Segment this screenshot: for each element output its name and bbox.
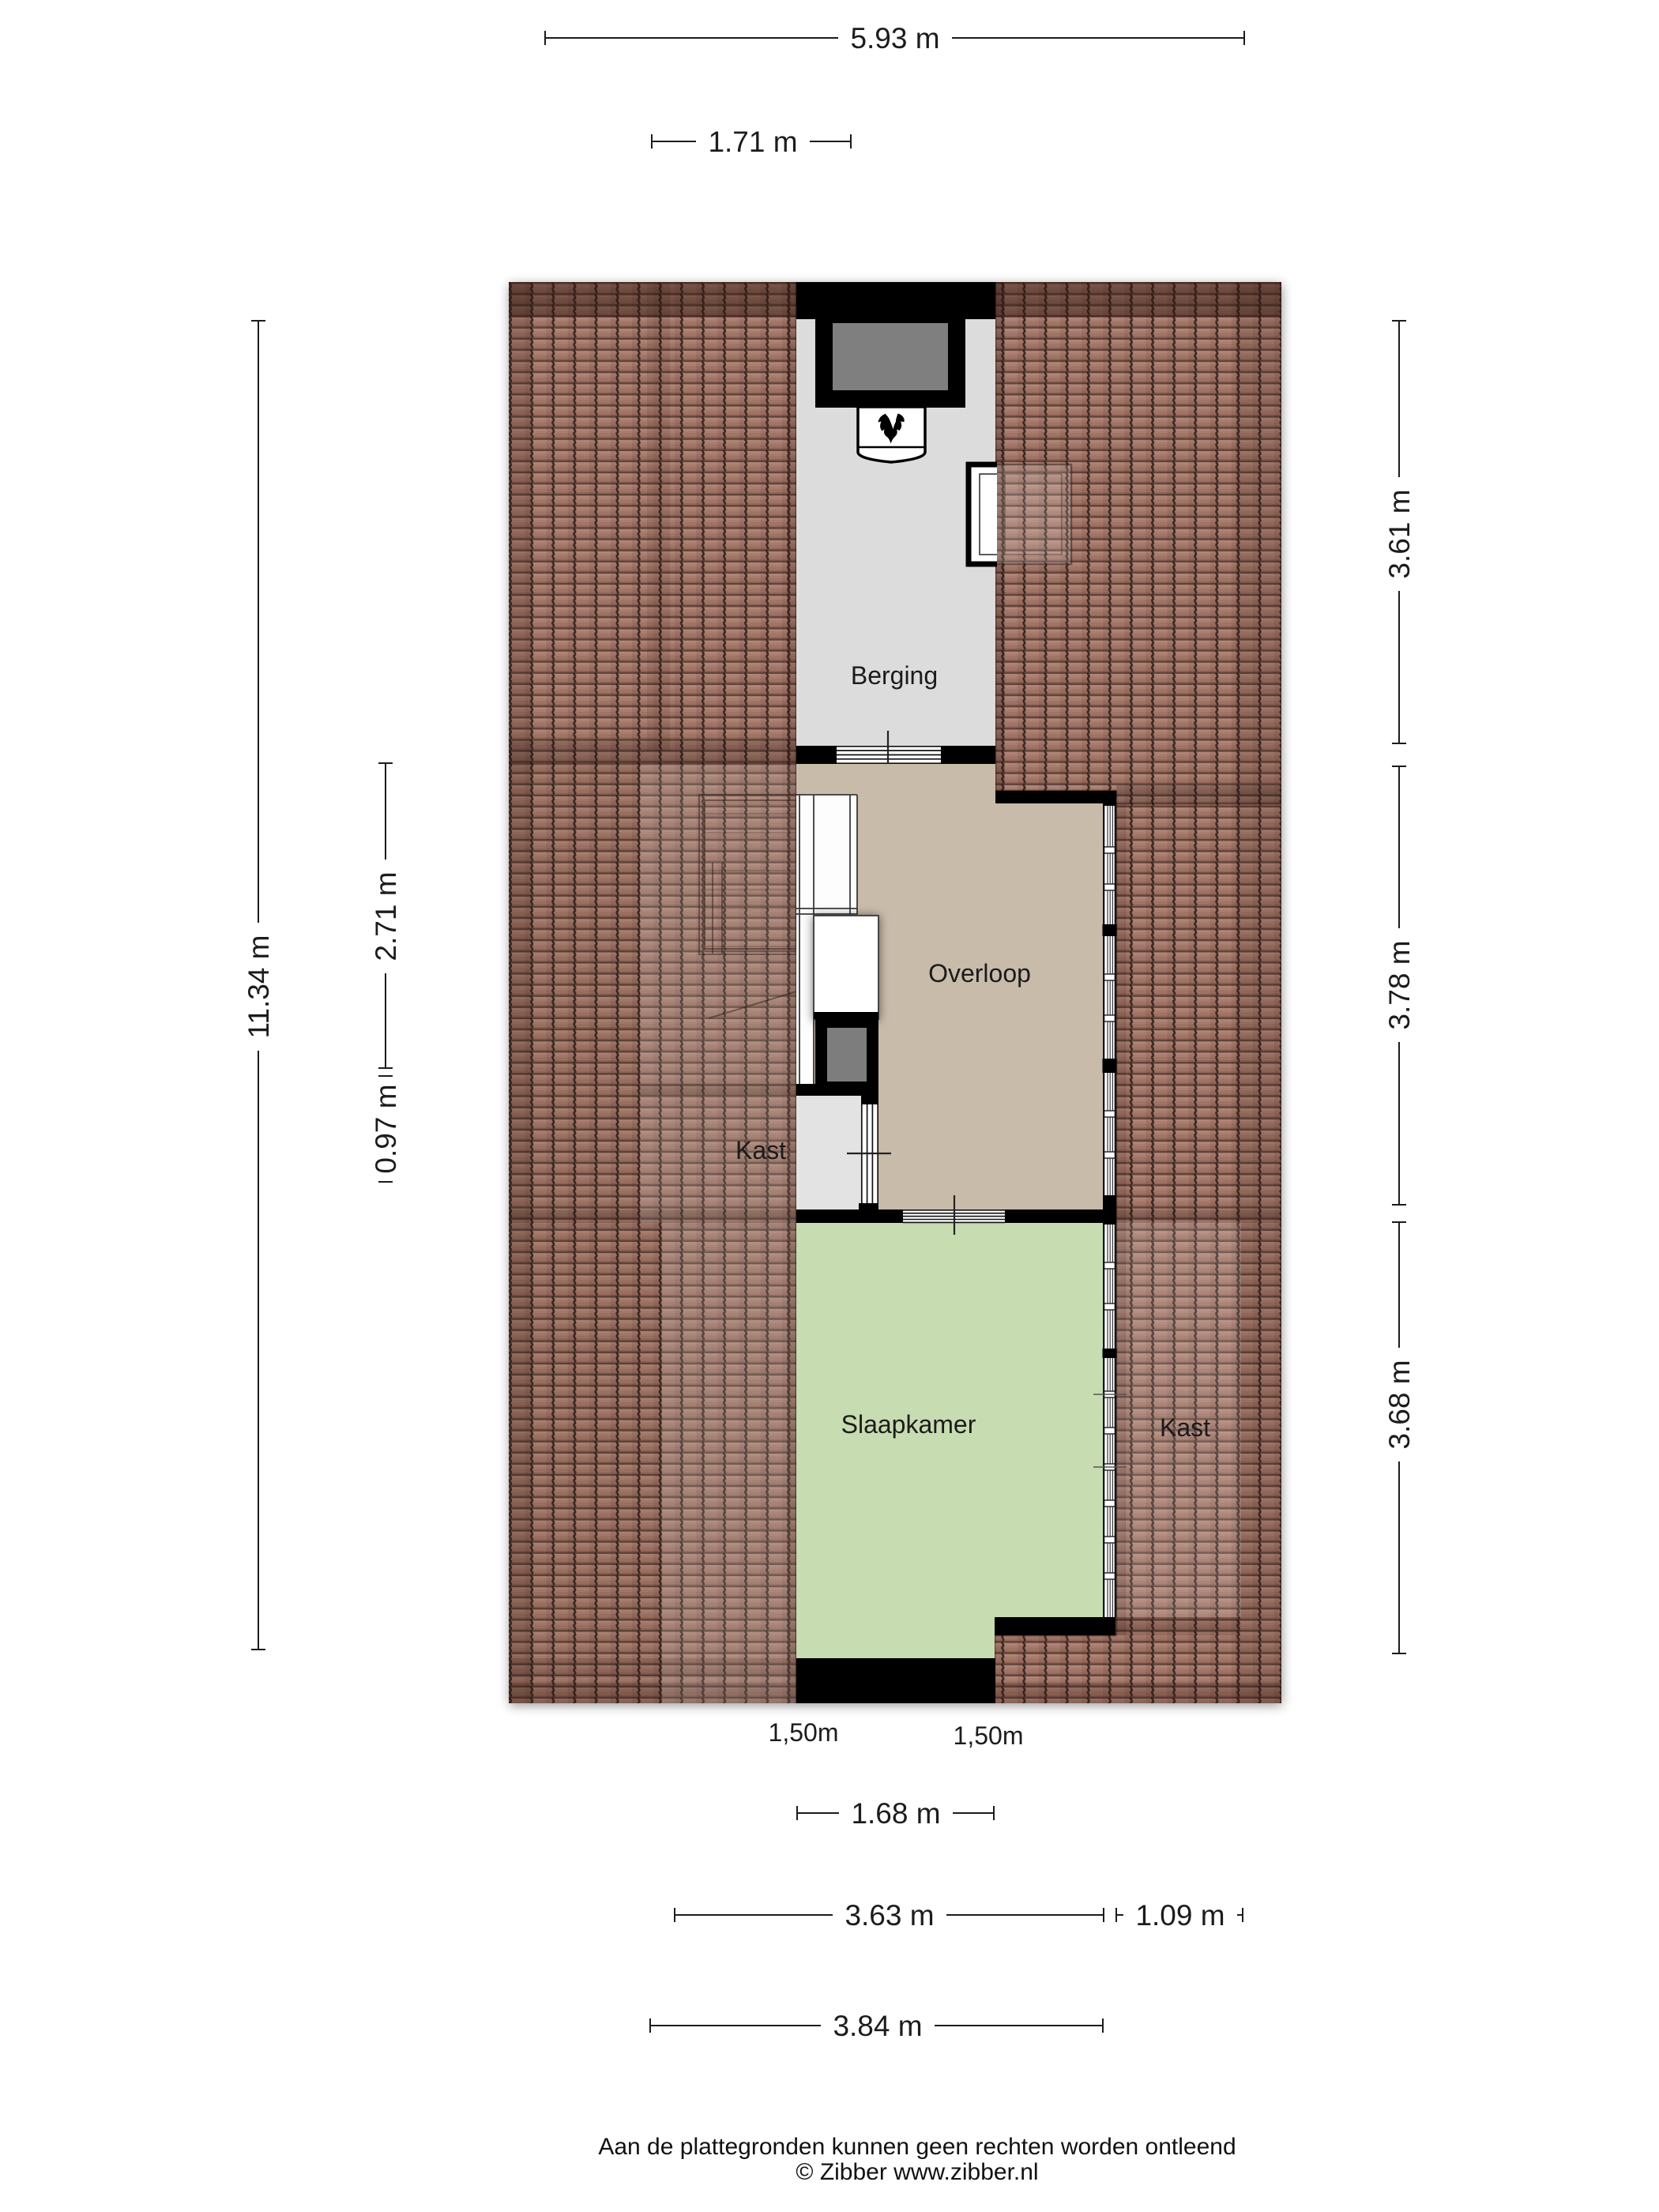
svg-text:0.97 m: 0.97 m xyxy=(370,1084,402,1173)
svg-text:3.78 m: 3.78 m xyxy=(1383,940,1416,1029)
svg-text:1,50m: 1,50m xyxy=(954,1721,1024,1750)
svg-text:Berging: Berging xyxy=(851,661,938,690)
svg-text:Kast: Kast xyxy=(1160,1413,1210,1442)
svg-text:3.63 m: 3.63 m xyxy=(845,1899,934,1932)
svg-text:1.68 m: 1.68 m xyxy=(851,1797,940,1830)
svg-text:3.68 m: 3.68 m xyxy=(1383,1360,1416,1449)
svg-text:5.93 m: 5.93 m xyxy=(850,22,939,55)
svg-text:3.84 m: 3.84 m xyxy=(833,2010,922,2042)
svg-text:3.61 m: 3.61 m xyxy=(1383,489,1416,578)
svg-text:Aan de plattegronden kunnen ge: Aan de plattegronden kunnen geen rechten… xyxy=(598,2134,1236,2160)
svg-text:Overloop: Overloop xyxy=(928,959,1031,987)
svg-text:© Zibber www.zibber.nl: © Zibber www.zibber.nl xyxy=(796,2159,1038,2185)
svg-text:Slaapkamer: Slaapkamer xyxy=(841,1410,976,1439)
svg-text:1.71 m: 1.71 m xyxy=(708,126,797,158)
svg-text:1.09 m: 1.09 m xyxy=(1135,1899,1224,1932)
svg-text:Kast: Kast xyxy=(735,1136,786,1164)
svg-text:2.71 m: 2.71 m xyxy=(370,871,402,961)
svg-text:1,50m: 1,50m xyxy=(769,1718,839,1747)
svg-text:11.34 m: 11.34 m xyxy=(243,935,275,1039)
